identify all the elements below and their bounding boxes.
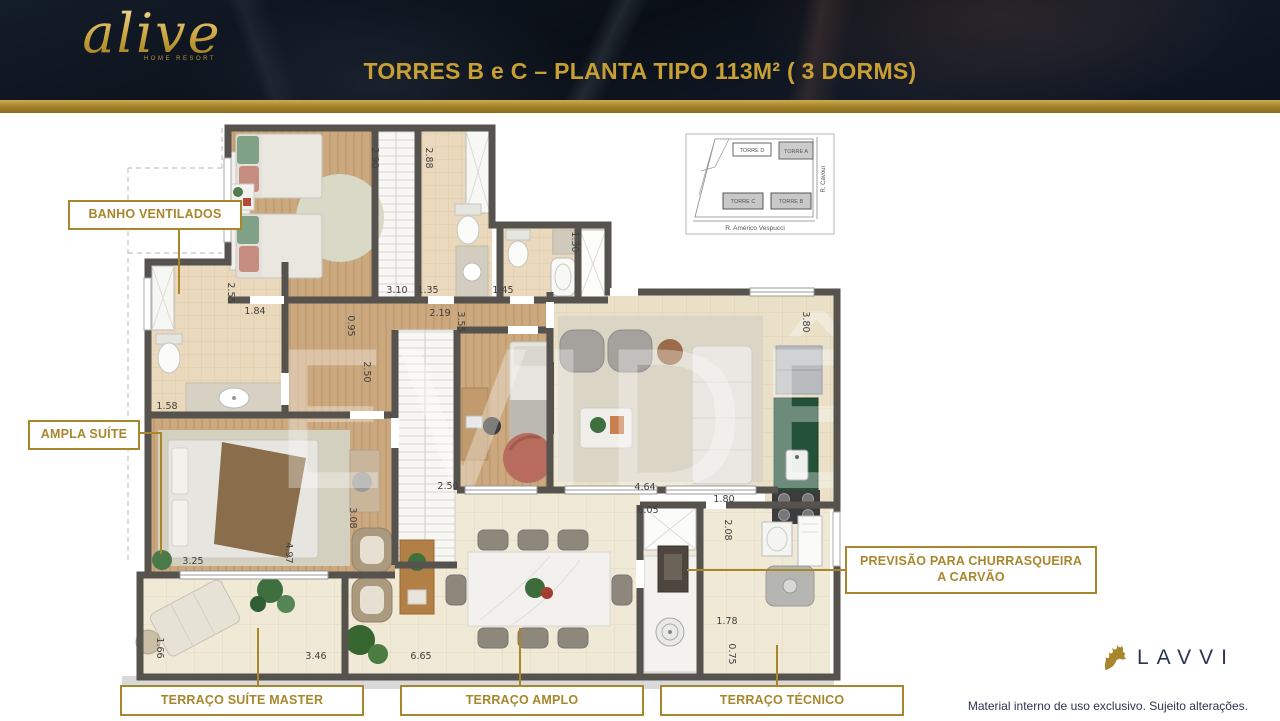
street-right-label: R. Cavour (821, 165, 827, 192)
dimension-label: 6.05 (637, 505, 658, 516)
dimension-label: 3.08 (347, 507, 358, 528)
dimension-label: 1.84 (244, 306, 265, 317)
dimension-label: 4.64 (634, 482, 655, 493)
dimension-label: 0.95 (345, 315, 356, 336)
alive-logo-word: alive (62, 4, 242, 64)
dimension-label: 3.46 (305, 651, 326, 662)
presentation-slide: { "header": { "brand": "alive", "brand_t… (0, 0, 1280, 721)
watermark: EVIDÊNCIA (270, 310, 850, 533)
lavvi-logo: LAVVI (1100, 642, 1235, 674)
leader-ampla-v (160, 432, 162, 554)
torre-b-label: TORRE B (779, 199, 804, 205)
leader-terraco-tecnico (776, 645, 778, 685)
dimension-label: 2.50 (361, 361, 372, 382)
callout-terraco-amplo: TERRAÇO AMPLO (400, 685, 644, 716)
alive-logo: alive HOME RESORT (62, 4, 242, 62)
dimension-label: 2.19 (429, 308, 450, 319)
torre-a-label: TORRE A (784, 149, 808, 155)
dimension-label: 3.25 (182, 556, 203, 567)
callout-terraco-tecnico: TERRAÇO TÉCNICO (660, 685, 904, 716)
dimension-label: 3.80 (800, 311, 811, 332)
dimension-label: 2.55 (225, 282, 236, 303)
dimension-label: 1.78 (716, 616, 737, 627)
dimension-label: 2.08 (722, 519, 733, 540)
gold-divider-bar (0, 100, 1280, 113)
dimension-label: 4.97 (283, 542, 294, 563)
dimension-label: 1.30 (569, 231, 580, 252)
torre-c-label: TORRE C (731, 199, 756, 205)
leader-banho (178, 228, 180, 294)
dimension-label: 3.55 (455, 311, 466, 332)
slide-title: TORRES B e C – PLANTA TIPO 113M² ( 3 DOR… (0, 58, 1280, 85)
dimension-label: 1.80 (713, 494, 734, 505)
street-bottom-label: R. Américo Vespucci (725, 225, 785, 232)
dimension-label: 1.45 (492, 285, 513, 296)
callout-ampla-suite: AMPLA SUÍTE (28, 420, 140, 450)
torre-d-label: TORRE D (740, 148, 765, 154)
header-marble-band: alive HOME RESORT TORRES B e C – PLANTA … (0, 0, 1280, 100)
dimension-label: 6.65 (410, 651, 431, 662)
dimension-label: 1.58 (156, 401, 177, 412)
callout-banho-ventilados: BANHO VENTILADOS (68, 200, 242, 230)
dimension-label: 2.50 (437, 481, 458, 492)
lavvi-lion-icon (1100, 642, 1128, 674)
dimension-label: 1.35 (417, 285, 438, 296)
leader-terraco-master (257, 628, 259, 685)
dimension-label: 0.75 (726, 643, 737, 664)
dimension-label: 2.88 (423, 147, 434, 168)
lavvi-wordmark: LAVVI (1137, 646, 1235, 670)
leader-previsao (687, 569, 845, 571)
dimension-label: 2.90 (369, 147, 380, 168)
callout-terraco-suite-master: TERRAÇO SUÍTE MASTER (120, 685, 364, 716)
disclaimer-text: Material interno de uso exclusivo. Sujei… (968, 699, 1248, 713)
site-map: TORRE D TORRE A TORRE C TORRE B R. Cavou… (685, 133, 835, 235)
callout-previsao-churrasqueira: PREVISÃO PARA CHURRASQUEIRA A CARVÃO (845, 546, 1097, 594)
dimension-label: 1.66 (154, 637, 165, 658)
leader-terraco-amplo (519, 628, 521, 685)
dimension-label: 3.10 (386, 285, 407, 296)
